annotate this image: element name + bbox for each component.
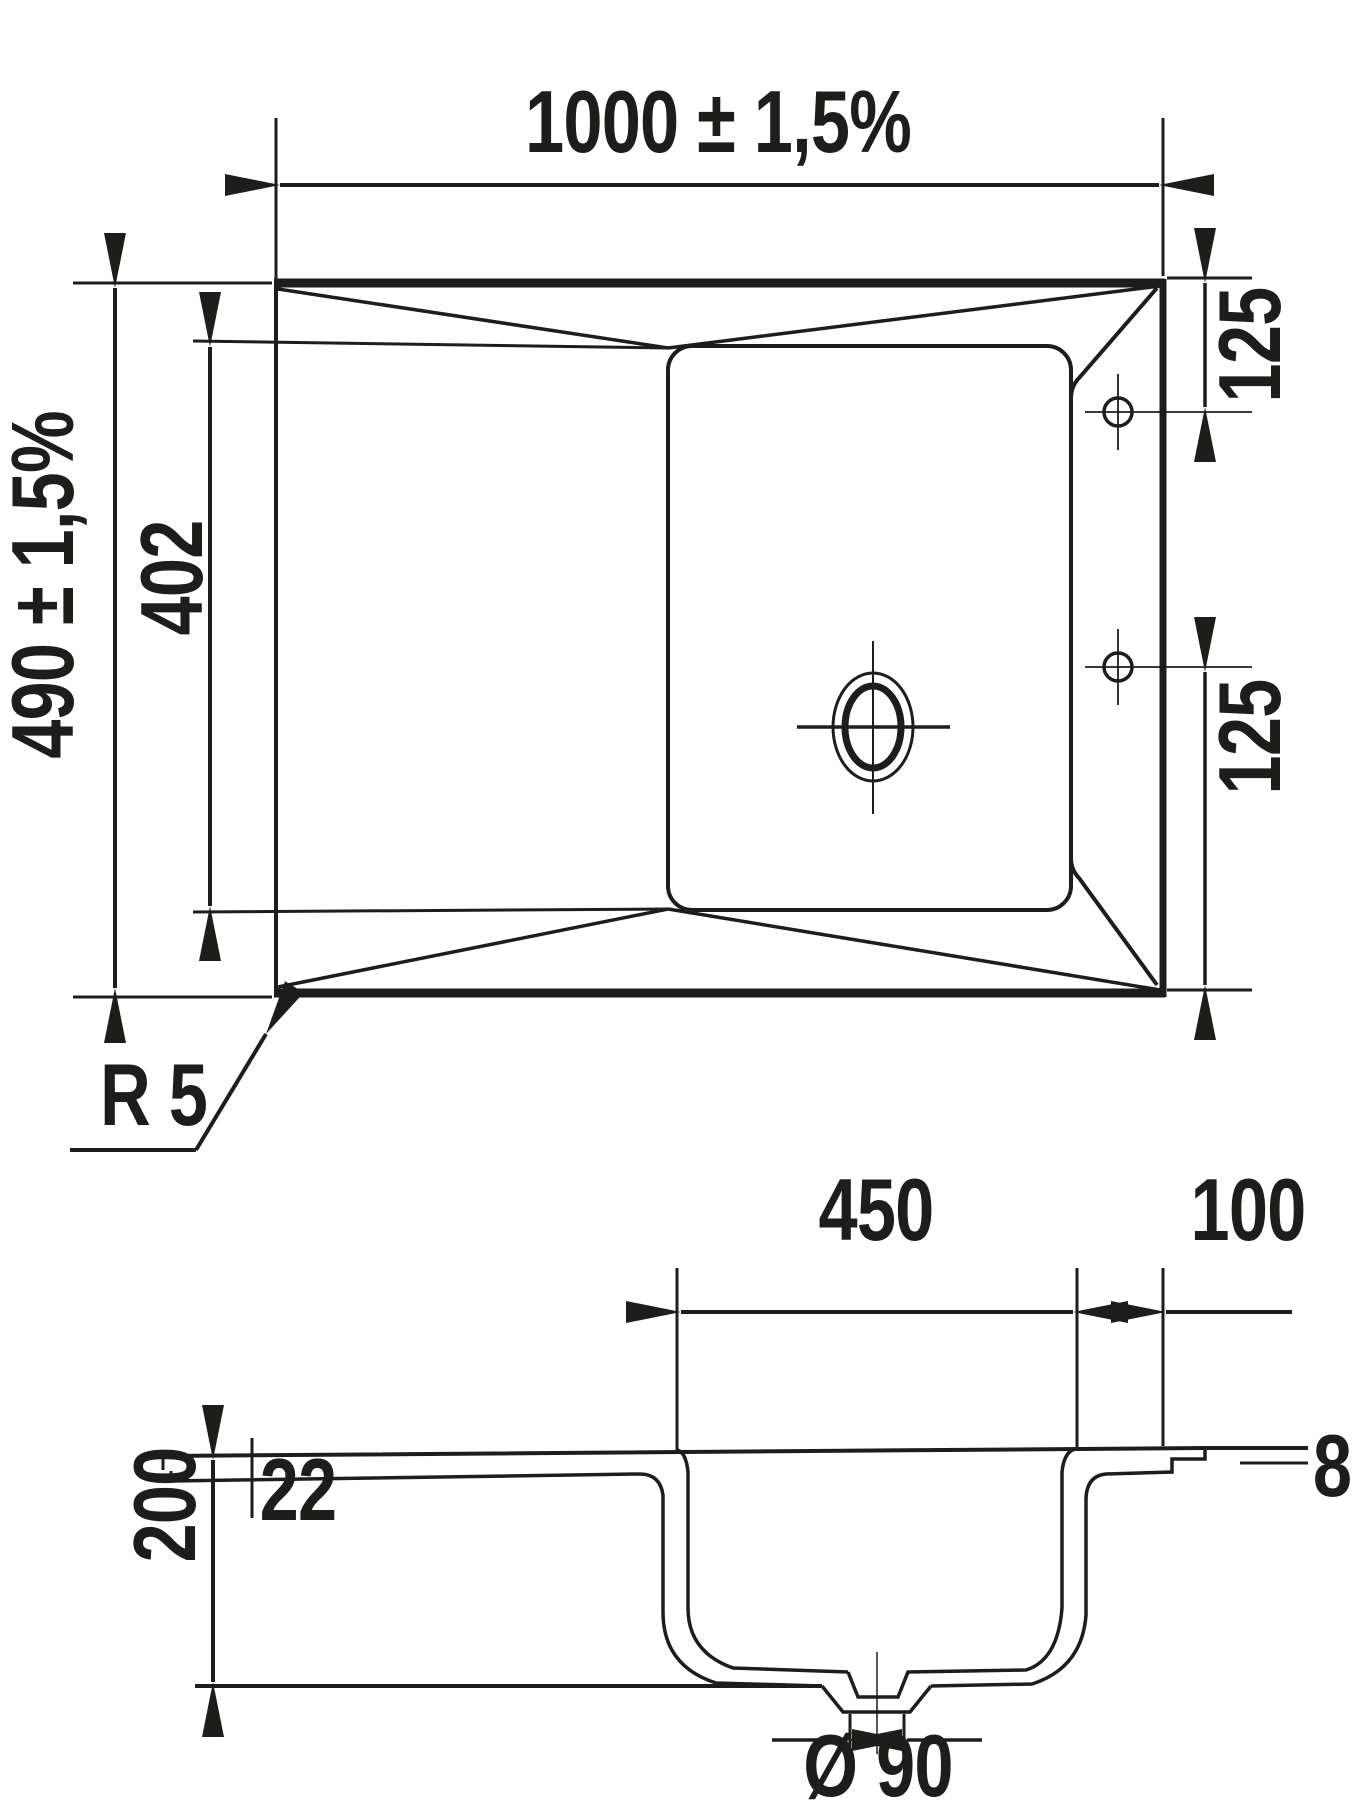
dim-label-overall-width: 1000 ± 1,5% <box>525 72 911 170</box>
rim-inner-top-line <box>668 286 1160 348</box>
top-view <box>70 118 1252 1150</box>
dim-label-drain-diameter: Ø 90 <box>803 1716 952 1800</box>
tap-ledge-outline <box>1071 288 1157 985</box>
bowl-outline <box>668 346 1071 910</box>
drainer-top-diagonal <box>278 289 668 348</box>
dim-label-right-rim-width: 100 <box>1190 1160 1305 1258</box>
dim-label-drainer-length: 402 <box>122 520 220 635</box>
drainer-bottom-diagonal <box>278 909 668 987</box>
sink-technical-drawing: 1000 ± 1,5% 490 ± 1,5% 402 125 125 R 5 4… <box>0 0 1362 1800</box>
bowl-inner-wall-right <box>848 1449 1075 1697</box>
section-underside-right <box>931 1449 1205 1686</box>
dim-label-overall-depth: 490 ± 1,5% <box>0 411 92 759</box>
dim-label-bowl-depth: 200 <box>115 1447 213 1562</box>
bowl-inner-wall-left <box>677 1450 848 1672</box>
drawing-page: 1000 ± 1,5% 490 ± 1,5% 402 125 125 R 5 4… <box>0 0 1362 1800</box>
dim-label-front-edge-height: 22 <box>260 1440 337 1538</box>
dimension-labels: 1000 ± 1,5% 490 ± 1,5% 402 125 125 R 5 4… <box>0 72 1362 1800</box>
dim-label-corner-radius: R 5 <box>100 1045 207 1143</box>
drainer-bottom-inner-line <box>193 909 668 912</box>
dim-label-rim-thickness: 8 <box>1313 1416 1351 1514</box>
rim-inner-bottom-line <box>668 909 1160 990</box>
dim-label-taphole-bottom-offset: 125 <box>1200 679 1298 794</box>
dim-label-taphole-top-offset: 125 <box>1200 287 1298 402</box>
drainer-top-inner-line <box>193 341 668 348</box>
drawing-root: 1000 ± 1,5% 490 ± 1,5% 402 125 125 R 5 4… <box>0 72 1362 1800</box>
dim-label-bowl-width: 450 <box>818 1160 933 1258</box>
